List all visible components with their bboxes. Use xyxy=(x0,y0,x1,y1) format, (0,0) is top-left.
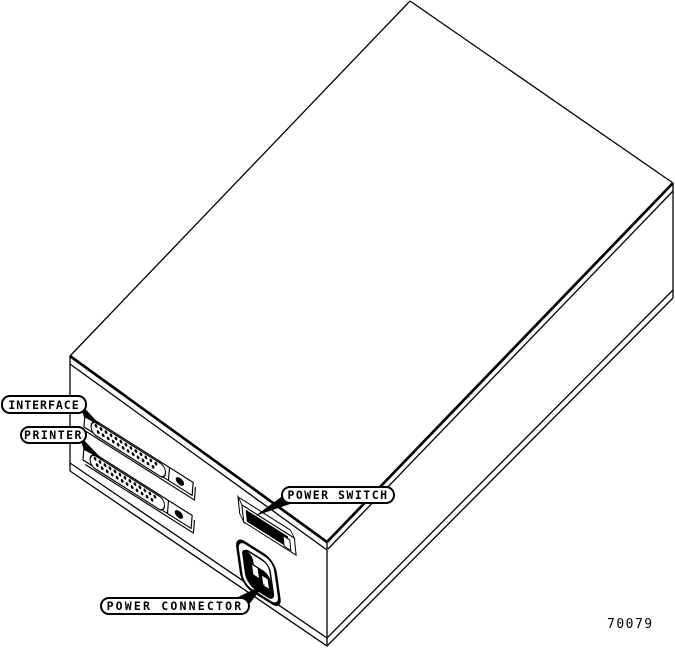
device-illustration xyxy=(0,0,675,653)
callout-interface: INTERFACE xyxy=(1,395,87,414)
chassis-outline xyxy=(70,1,673,646)
callout-power-connector: POWER CONNECTOR xyxy=(100,597,250,615)
callout-printer: PRINTER xyxy=(20,426,87,444)
figure-number: 70079 xyxy=(607,617,654,632)
figure-canvas: INTERFACE PRINTER POWER SWITCH POWER CON… xyxy=(0,0,675,653)
callout-power-switch: POWER SWITCH xyxy=(281,486,395,504)
